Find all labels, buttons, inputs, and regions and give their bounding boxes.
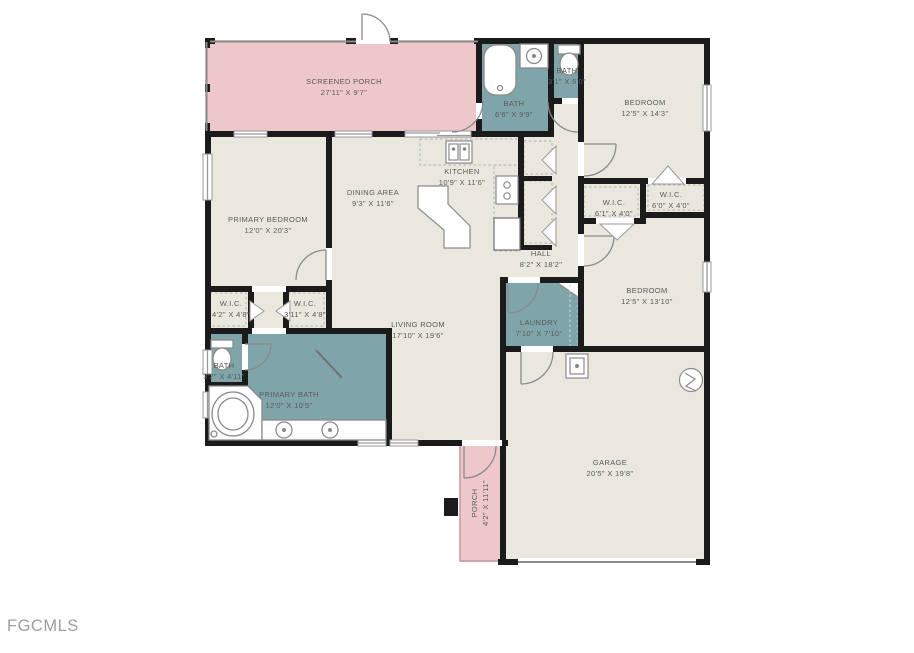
room-label-living-room: LIVING ROOM17'10" X 19'6"	[391, 319, 445, 341]
room-label-porch: PORCH4'2" X 11'11"	[469, 480, 491, 526]
fgcmls-watermark: FGCMLS	[7, 617, 79, 636]
refrigerator	[494, 218, 520, 250]
room-label-kitchen: KITCHEN10'9" X 11'6"	[439, 166, 485, 188]
room-label-screened-porch: SCREENED PORCH27'11" X 9'7"	[306, 76, 382, 98]
porch-column	[444, 498, 458, 516]
corner-tub-faucet	[211, 431, 217, 437]
front-screen-door-swing	[362, 14, 390, 42]
room-label-laundry: LAUNDRY7'10" X 7'10"	[516, 317, 563, 339]
stove	[496, 176, 518, 204]
room-label-dining-area: DINING AREA9'3" X 11'6"	[347, 187, 399, 209]
room-label-garage: GARAGE20'5" X 19'8"	[587, 457, 634, 479]
room-label-hall: HALL8'2" X 18'2"	[520, 248, 562, 270]
room-label-bath-primary-sm: BATH3'2" X 4'11"	[203, 360, 245, 382]
room-label-wic-primary-a: W.I.C.4'2" X 4'8"	[212, 298, 250, 320]
room-label-bath-2: BATH3'1" X 6'0"	[548, 65, 586, 87]
room-label-wic-primary-b: W.I.C.3'11" X 4'8"	[284, 298, 326, 320]
room-label-primary-bedroom: PRIMARY BEDROOM12'0" X 20'3"	[228, 214, 308, 236]
room-label-bath-main: BATH6'6" X 9'9"	[495, 98, 533, 120]
room-label-bedroom-ne: BEDROOM12'5" X 14'3"	[622, 97, 669, 119]
room-label-wic-hall-left: W.I.C.6'1" X 4'0"	[595, 197, 633, 219]
room-label-wic-hall-right: W.I.C.6'0" X 4'0"	[652, 189, 690, 211]
toilet-tank-2	[211, 340, 233, 348]
room-label-bedroom-se: BEDROOM12'5" X 13'10"	[621, 285, 672, 307]
room-label-primary-bath: PRIMARY BATH12'0" X 10'5"	[259, 389, 319, 411]
floor-plan-drawing	[0, 0, 914, 653]
floor-plan-page: SCREENED PORCH27'11" X 9'7" BATH6'6" X 9…	[0, 0, 914, 653]
bathtub-faucet	[498, 86, 503, 91]
